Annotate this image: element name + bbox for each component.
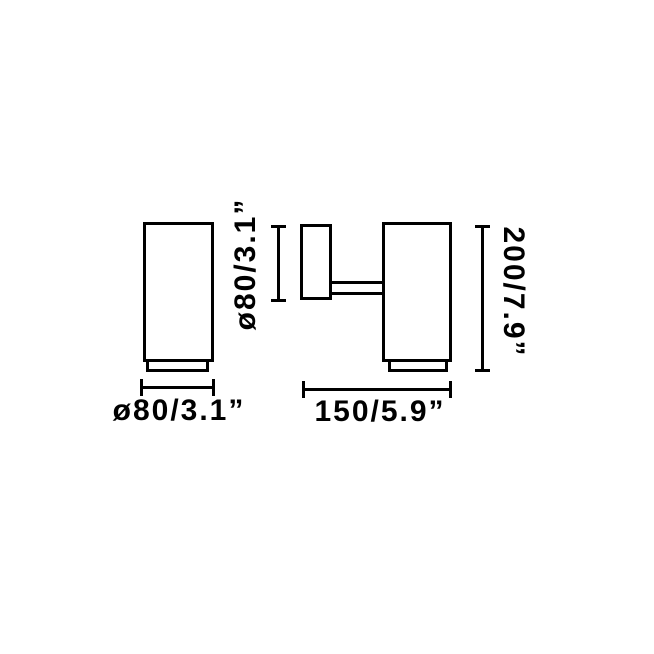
canopy-diameter-dimension-line [277,225,280,302]
height-dimension-line [481,225,484,372]
projection-dimension-line [303,388,452,391]
height-label: 200/7.9” [496,226,530,357]
front-view-trim-ring [146,359,209,372]
front-diameter-label: ø80/3.1” [113,394,246,428]
front-diameter-dimension-line [141,386,215,389]
side-view-arm [332,281,382,295]
side-view-cylinder-body [382,222,452,362]
front-view-cylinder-body [143,222,214,362]
dimension-drawing: ø80/3.1” ø80/3.1” 150/5.9” 200/7.9” [0,0,654,654]
side-view-wall-canopy [300,224,332,300]
canopy-diameter-label: ø80/3.1” [229,198,263,331]
projection-label: 150/5.9” [314,395,445,429]
side-view-trim-ring [388,359,448,372]
